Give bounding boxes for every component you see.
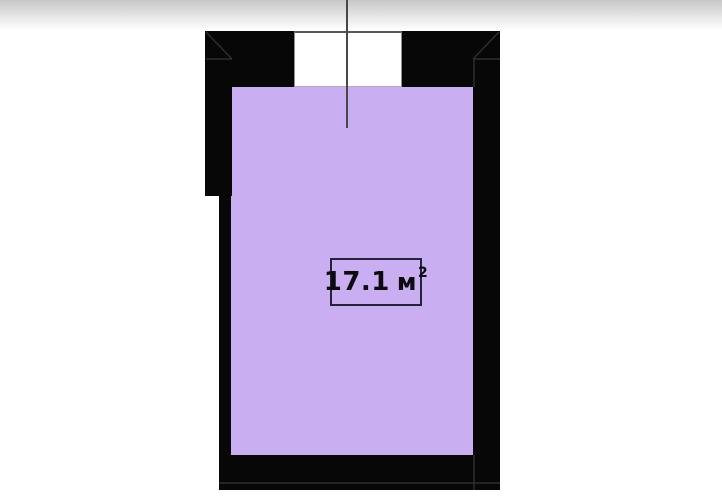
- top-gradient-shadow: [0, 0, 722, 30]
- wall-bottom: [219, 455, 500, 490]
- window-opening: [294, 31, 402, 87]
- room-area-label: 17.1м2: [330, 258, 422, 306]
- floor-plan: 17.1м2: [0, 0, 722, 500]
- wall-left-thick: [205, 31, 232, 196]
- area-unit: м: [397, 268, 417, 296]
- wall-left-thin: [219, 196, 231, 490]
- area-value: 17.1: [324, 267, 390, 297]
- section-centerline: [346, 0, 348, 128]
- wall-right: [473, 31, 500, 490]
